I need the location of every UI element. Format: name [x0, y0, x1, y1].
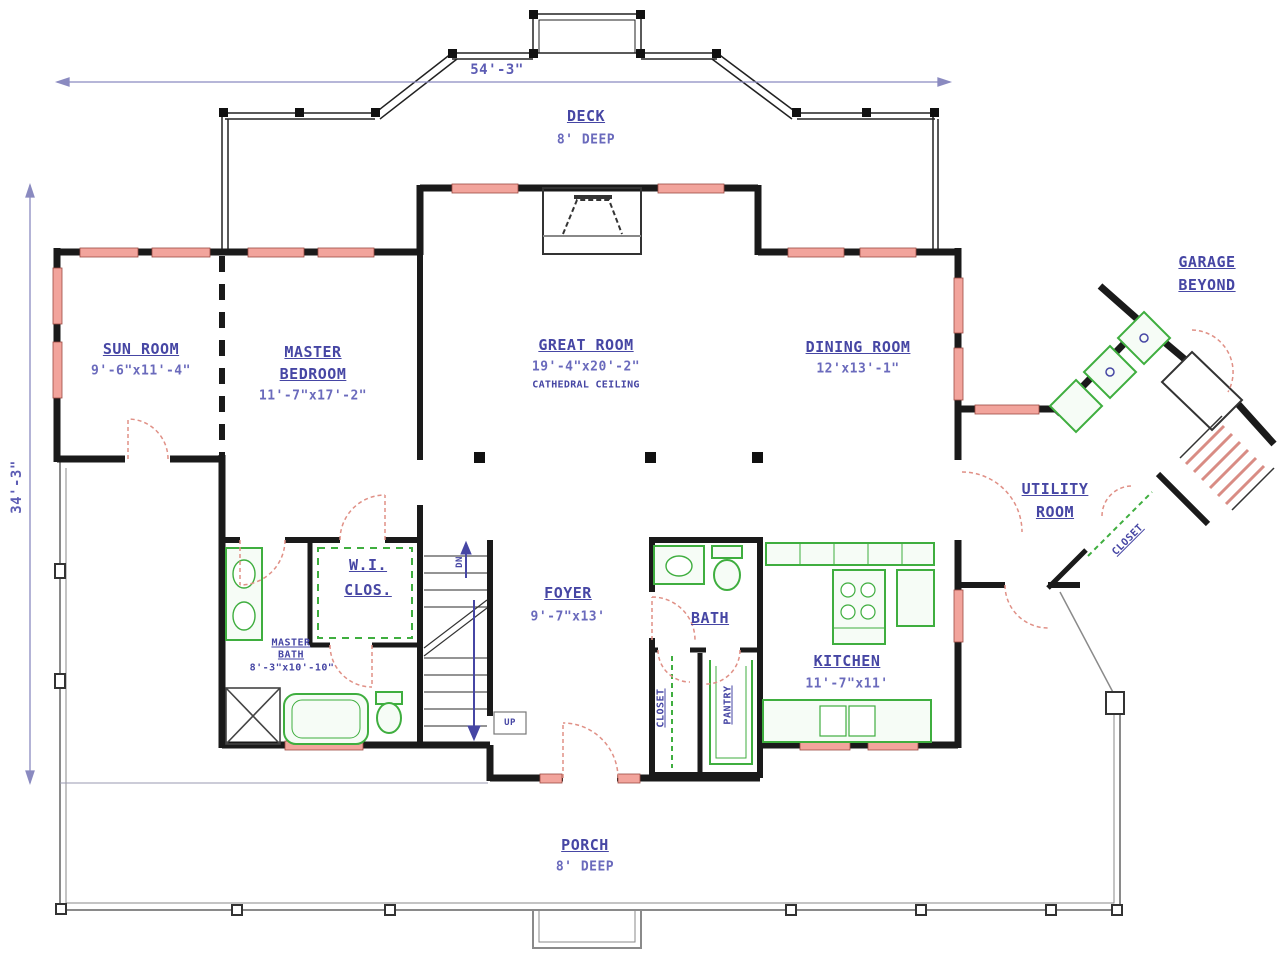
- deck-posts: [219, 10, 939, 117]
- columns: [474, 452, 763, 463]
- kitchen-label: KITCHEN: [814, 652, 881, 670]
- great-room-size: 19'-4"x20'-2": [532, 360, 640, 375]
- porch-size: 8' DEEP: [556, 860, 614, 875]
- bath-label: BATH: [691, 609, 729, 627]
- deck-label: DECK: [567, 107, 605, 125]
- walk-in-closet-label-line2: CLOS.: [344, 581, 392, 599]
- closet-label: CLOSET: [656, 688, 667, 727]
- sun-room-size: 9'-6"x11'-4": [91, 364, 191, 379]
- foyer-label: FOYER: [544, 584, 592, 602]
- overall-width-dimension: 54'-3": [470, 62, 524, 78]
- floor-plan-page: 54'-3" 34'-3" DECK 8' DEEP GARAGE BEYOND…: [0, 0, 1280, 960]
- master-bedroom-label-line2: BEDROOM: [280, 365, 347, 383]
- windows: [53, 184, 1039, 783]
- walk-in-closet-label-line1: W.I.: [349, 556, 387, 574]
- master-bath-size: 8'-3"x10'-10": [250, 663, 335, 674]
- stair-direction-arrow: [461, 542, 480, 740]
- garage-label-line1: GARAGE: [1178, 253, 1235, 271]
- stairs-up-label: UP: [504, 718, 516, 728]
- dining-room-size: 12'x13'-1": [816, 362, 899, 377]
- washer-dryer-units: [1050, 312, 1170, 432]
- foyer-size: 9'-7"x13': [531, 610, 606, 625]
- kitchen-counters: [763, 543, 934, 742]
- master-bath-label-line1: MASTER: [271, 638, 310, 649]
- overall-depth-dimension: 34'-3": [9, 460, 25, 514]
- master-bedroom-size: 11'-7"x17'-2": [259, 389, 367, 404]
- shower: [226, 688, 280, 744]
- garage-landing: [1162, 352, 1242, 430]
- master-bedroom-label-line1: MASTER: [284, 343, 341, 361]
- deck-size: 8' DEEP: [557, 133, 615, 148]
- garage-label-line2: BEYOND: [1178, 276, 1235, 294]
- master-bath-label-line2: BATH: [278, 650, 304, 661]
- great-room-label: GREAT ROOM: [538, 336, 633, 354]
- dining-room-label: DINING ROOM: [806, 338, 911, 356]
- fireplace: [543, 188, 641, 254]
- sun-room-label: SUN ROOM: [103, 340, 179, 358]
- stairs-down-label: DN: [455, 556, 465, 568]
- pantry-label: PANTRY: [723, 685, 734, 724]
- bath-fixtures: [654, 546, 742, 590]
- utility-room-label-line1: UTILITY: [1022, 480, 1089, 498]
- great-room-note: CATHEDRAL CEILING: [532, 380, 639, 391]
- porch-label: PORCH: [561, 836, 609, 854]
- utility-room-label-line2: ROOM: [1036, 503, 1074, 521]
- kitchen-size: 11'-7"x11': [805, 677, 888, 692]
